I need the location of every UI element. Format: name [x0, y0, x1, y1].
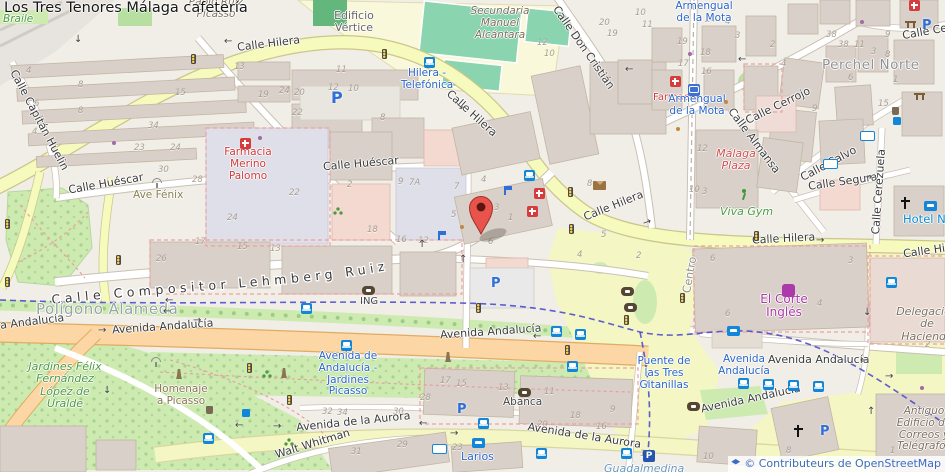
house-number: 9 — [812, 104, 817, 114]
oneway-arrow: ↑ — [867, 406, 875, 417]
bus-stop-icon — [788, 380, 799, 391]
shop-dot-icon — [258, 136, 262, 140]
hotel-icon — [823, 159, 838, 169]
osm-layers-icon — [731, 459, 740, 468]
house-number: 8 — [380, 113, 385, 123]
house-number: 28 — [420, 393, 431, 403]
poi-label-viva-gym: Viva Gym — [720, 206, 773, 218]
oneway-arrow: ← — [860, 355, 868, 366]
bank-icon — [687, 402, 700, 411]
house-number: 10 — [689, 185, 700, 195]
picnic-icon — [914, 92, 925, 100]
house-number: 13 — [234, 62, 245, 72]
house-number: 17 — [195, 237, 206, 247]
house-number: 38 — [826, 30, 837, 40]
bus-stop-icon — [341, 340, 352, 351]
house-number: 13 — [270, 244, 281, 254]
oneway-arrow: ← — [738, 54, 746, 65]
poi-label-malaga-plaza: Málaga Plaza — [712, 148, 760, 173]
oneway-arrow: ← — [165, 295, 173, 306]
house-number: 10 — [348, 84, 359, 94]
house-number: 19 — [677, 37, 688, 47]
transit-label-hilera-telefonica: Hilera - Telefónica — [398, 68, 456, 92]
poi-label-ing: ING — [360, 296, 378, 307]
place-label-poligono-alameda: Polígono Alameda — [36, 301, 178, 318]
house-number: 17 — [440, 376, 451, 386]
department-store-icon — [782, 284, 795, 297]
traffic-signal-icon — [5, 277, 10, 287]
map-marker-pin[interactable] — [455, 178, 515, 244]
place-label-perchel-norte: Perchel Norte — [822, 58, 920, 73]
parking-icon: P — [820, 424, 830, 439]
house-number: 17 — [678, 59, 689, 69]
oneway-arrow: → — [450, 428, 458, 439]
shop-dot-icon — [920, 386, 924, 390]
house-number: 24 — [279, 86, 290, 96]
house-number: 10 — [635, 8, 646, 18]
hotel-icon — [860, 131, 875, 141]
transit-label-jardines-picasso: Avenida de Andalucía - Jardines Picasso — [316, 351, 380, 398]
playground-icon — [333, 207, 343, 215]
house-number: 9 — [398, 177, 403, 187]
taxi-stand-icon — [924, 201, 937, 211]
shop-dot-icon — [860, 20, 864, 24]
house-number: 15 — [878, 99, 889, 109]
house-number: 38 — [838, 40, 849, 50]
bus-stop-icon — [301, 303, 312, 314]
pharmacy-icon — [909, 0, 920, 11]
house-number: 2 — [770, 40, 775, 50]
house-number: 15 — [456, 379, 467, 389]
hospital-icon — [534, 188, 545, 199]
post-office-icon — [593, 181, 606, 190]
oneway-arrow: ← — [163, 306, 171, 317]
house-number: 8 — [78, 80, 83, 90]
house-number: 4 — [781, 59, 786, 69]
house-number: 23 — [134, 143, 145, 153]
house-number: 18 — [700, 48, 711, 58]
house-number: 11 — [854, 40, 865, 50]
fitness-icon — [742, 189, 746, 193]
fountain-icon — [151, 357, 161, 362]
bus-stop-icon — [813, 381, 824, 392]
bus-stop-icon — [536, 448, 547, 459]
hotel-icon — [432, 444, 447, 454]
house-number: 2 — [636, 251, 641, 261]
house-number: 5 — [601, 230, 606, 240]
traffic-signal-icon — [754, 231, 759, 241]
house-number: 18 — [367, 225, 378, 235]
bank-icon — [518, 388, 531, 397]
place-label-secundaria: Secundaria Manuel Alcántara — [462, 6, 538, 41]
house-number: 6 — [710, 254, 715, 264]
parking-icon: P — [491, 276, 501, 291]
bus-stop-icon — [203, 433, 214, 444]
pharmacy-icon — [527, 206, 538, 217]
house-number: 11 — [544, 387, 555, 397]
house-number: 32 — [322, 407, 333, 417]
house-number: 9 — [610, 405, 615, 415]
place-label-edificio-vertice: Edificio Vértice — [325, 10, 383, 35]
poi-label-farmacia-merino: Farmacia Merino Palomo — [219, 147, 277, 182]
bus-stop-icon — [575, 329, 586, 340]
bus-stop-icon — [551, 326, 562, 337]
bus-stop-icon — [763, 379, 774, 390]
house-number: 15 — [237, 242, 248, 252]
house-number: 11 — [642, 20, 653, 30]
house-number: 2 — [347, 180, 352, 190]
shop-dot-icon — [676, 127, 680, 131]
house-number: 3 — [702, 187, 707, 197]
oneway-arrow: ← — [224, 36, 232, 47]
house-number: 22 — [292, 108, 303, 118]
house-number: 15 — [175, 88, 186, 98]
bus-stop-icon — [524, 170, 535, 181]
oneway-arrow: → — [864, 172, 872, 183]
traffic-signal-icon — [476, 303, 481, 313]
parking-icon: P — [331, 88, 343, 107]
house-number: 20 — [599, 18, 610, 28]
house-number: 20 — [294, 88, 305, 98]
house-number: 8 — [786, 446, 791, 456]
traffic-signal-icon — [565, 345, 570, 355]
house-number: 12 — [537, 38, 548, 48]
shop-dot-icon — [724, 100, 728, 104]
traffic-signal-icon — [247, 363, 252, 373]
oneway-arrow: ← — [235, 420, 243, 431]
house-number: 6 — [725, 309, 730, 319]
oneway-arrow: ← — [419, 418, 427, 429]
flag-icon — [438, 231, 440, 240]
house-number: 30 — [158, 165, 169, 175]
fountain-icon — [152, 178, 162, 183]
oneway-arrow: ↓ — [863, 307, 871, 318]
traffic-signal-icon — [680, 293, 685, 303]
oneway-arrow: ← — [625, 64, 633, 75]
attribution-text[interactable]: © Contributeurs de OpenStreetMap — [744, 457, 941, 470]
pharmacy-icon — [240, 138, 251, 149]
bank-icon — [362, 286, 375, 295]
church-icon — [794, 425, 803, 437]
bank-icon — [624, 303, 637, 312]
house-number: 3 — [871, 47, 876, 57]
house-number: 12 — [697, 144, 708, 154]
transit-label-avenida-stop: Avenida Andalucía — [718, 354, 770, 378]
traffic-signal-icon — [382, 49, 387, 59]
bus-stop-icon — [621, 448, 632, 459]
house-number: 24 — [170, 143, 181, 153]
traffic-signal-icon — [5, 219, 10, 229]
place-label-homenaje-picasso: Homenaje a Picasso — [150, 384, 212, 408]
house-number: 31 — [351, 447, 362, 457]
poi-label-hotel-nh: Hotel NH — [903, 213, 945, 226]
house-number: 10 — [703, 452, 714, 462]
waste-basket-icon — [892, 107, 899, 115]
church-icon — [901, 197, 910, 209]
oneway-arrow: ↓ — [103, 385, 111, 396]
shop-dot-icon — [688, 52, 692, 56]
house-number: 8 — [587, 179, 592, 189]
playground-icon — [262, 370, 272, 378]
shop-dot-icon — [112, 141, 116, 145]
traffic-signal-icon — [287, 395, 292, 405]
poi-label-el-corte-ingles: El Corte Inglés — [753, 293, 815, 320]
page-title: Los Tres Tenores Málaga cafetería — [4, 0, 248, 16]
house-number: 16 — [701, 67, 712, 77]
house-number: 34 — [148, 121, 159, 131]
street-label-avenida-4: Avenida Andalucía — [768, 354, 870, 366]
pharmacy-icon — [670, 76, 681, 87]
transit-label-armengual-2: Armengual de la Mota — [665, 94, 729, 118]
house-number: 9 — [885, 30, 890, 40]
oneway-arrow: ↑ — [459, 254, 467, 265]
house-number: 28 — [192, 175, 203, 185]
playground-icon — [284, 438, 294, 446]
traffic-signal-icon — [569, 224, 574, 234]
picnic-icon — [905, 20, 916, 28]
metro-station-icon — [688, 84, 700, 96]
bus-stop-icon — [738, 378, 749, 389]
oneway-arrow: → — [816, 235, 824, 246]
house-number: 3 — [848, 256, 853, 266]
house-number: 4 — [817, 299, 822, 309]
house-number: 6 — [848, 73, 853, 83]
drinking-water-icon — [242, 409, 250, 417]
place-label-delegacion: Delegación de Hacienda — [895, 306, 945, 343]
map-canvas[interactable]: Calle Compositor Lehmberg Ruiz Calle Hil… — [0, 0, 945, 472]
house-number: 7A — [409, 178, 420, 188]
house-number: 3 — [735, 31, 740, 41]
drinking-water-icon — [893, 117, 901, 125]
oneway-arrow: → — [273, 421, 281, 432]
oneway-arrow: → — [885, 371, 893, 382]
house-number: 24 — [227, 213, 238, 223]
traffic-signal-icon — [624, 315, 629, 325]
parking-icon: P — [457, 402, 467, 417]
traffic-signal-icon — [191, 54, 196, 64]
house-number: 22 — [289, 188, 300, 198]
place-label-jardines-felix: Jardines Félix Fernández López de Uralde — [22, 361, 108, 410]
bus-stop-icon — [424, 57, 435, 68]
oneway-arrow: → — [193, 315, 201, 326]
place-label-antiguo-correos: Antiguo Edificio de Correos y Telégrafos — [891, 406, 945, 453]
attribution[interactable]: © Contributeurs de OpenStreetMap — [728, 456, 945, 472]
oneway-arrow: ← — [533, 331, 541, 342]
traffic-signal-icon — [568, 187, 573, 197]
park-and-ride-icon: P — [643, 450, 655, 462]
house-number: 4 — [26, 66, 31, 76]
transit-label-puente-gitanillas: Puente de las Tres Gitanillas — [634, 356, 694, 391]
house-number: 8 — [78, 106, 83, 116]
house-number: 16 — [396, 235, 407, 245]
waste-basket-icon — [206, 406, 213, 414]
oneway-arrow: ↑ — [418, 239, 426, 250]
bus-stop-icon — [567, 361, 578, 372]
house-number: 26 — [156, 254, 167, 264]
place-label-guadalmedina: Guadalmedina — [604, 463, 684, 472]
oneway-arrow: → — [98, 325, 106, 336]
parking-icon: P — [922, 18, 932, 33]
taxi-stand-icon — [727, 326, 740, 336]
bus-stop-icon — [478, 418, 489, 429]
house-number: 19 — [258, 90, 269, 100]
house-number: 18 — [570, 411, 581, 421]
house-number: 13 — [498, 383, 509, 393]
poi-label-ave-fenix: Ave Fénix — [133, 190, 183, 202]
house-number: 1 — [893, 75, 898, 85]
bank-icon — [621, 287, 634, 296]
house-number: 29 — [397, 440, 408, 450]
house-number: 11 — [336, 65, 347, 75]
bus-stop-icon — [886, 277, 897, 288]
transit-label-armengual-1: Armengual de la Mota — [672, 1, 736, 25]
poi-label-abanca: Abanca — [503, 397, 542, 409]
transit-label-larios: Larios — [461, 451, 494, 463]
oneway-arrow: ↓ — [74, 34, 82, 45]
house-number: 19 — [607, 29, 618, 39]
taxi-stand-icon — [472, 438, 485, 448]
traffic-signal-icon — [116, 255, 121, 265]
house-number: 4 — [577, 250, 582, 260]
house-number: 10 — [544, 49, 555, 59]
